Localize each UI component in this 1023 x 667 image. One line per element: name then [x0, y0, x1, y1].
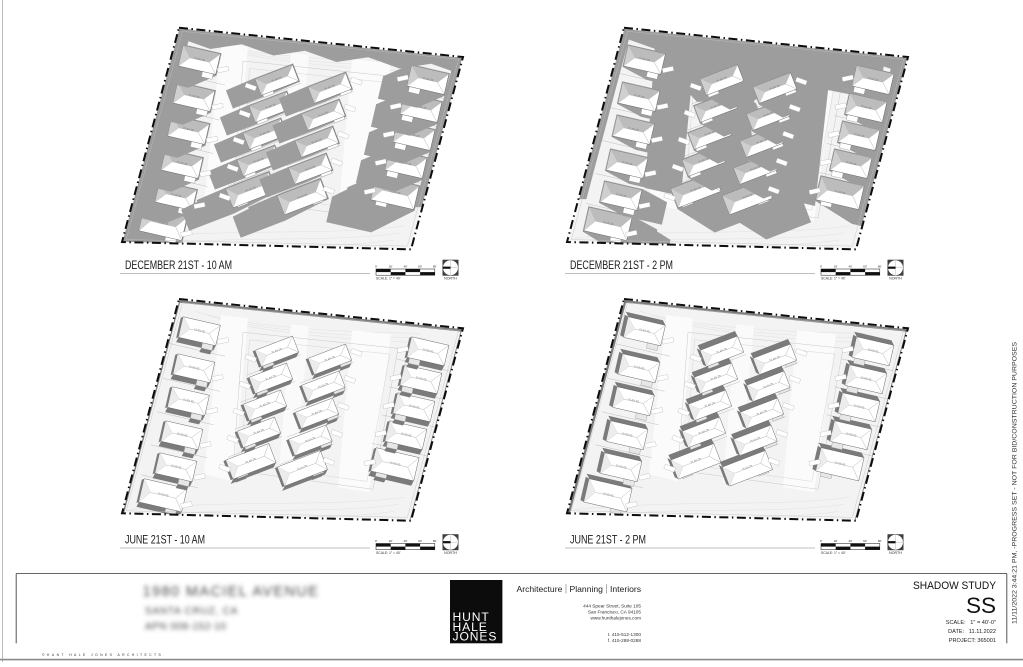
- svg-text:40′: 40′: [848, 265, 852, 269]
- svg-text:f. 415-288-0288: f. 415-288-0288: [608, 638, 641, 643]
- svg-text:40′: 40′: [403, 539, 407, 543]
- svg-text:Planning: Planning: [570, 584, 604, 594]
- svg-text:80′: 80′: [878, 265, 882, 269]
- svg-text:NORTH: NORTH: [889, 551, 902, 555]
- svg-text:SHADOW STUDY: SHADOW STUDY: [913, 580, 996, 592]
- svg-text:Interiors: Interiors: [610, 584, 641, 594]
- svg-text:60′: 60′: [418, 539, 422, 543]
- svg-text:20′: 20′: [389, 539, 393, 543]
- svg-text:DECEMBER 21ST - 10 AM: DECEMBER 21ST - 10 AM: [125, 258, 232, 272]
- svg-text:JUNE 21ST - 10 AM: JUNE 21ST - 10 AM: [125, 533, 205, 547]
- svg-text:SCALE: 1″ = 40′: SCALE: 1″ = 40′: [376, 277, 401, 281]
- svg-text:20′: 20′: [834, 265, 838, 269]
- svg-text:80′: 80′: [878, 539, 882, 543]
- svg-text:PROJECT: 365001: PROJECT: 365001: [949, 638, 996, 644]
- svg-text:JONES: JONES: [453, 630, 498, 644]
- svg-text:NORTH: NORTH: [889, 277, 902, 281]
- svg-text:1980 MACIEL AVENUE: 1980 MACIEL AVENUE: [143, 584, 320, 600]
- svg-text:444 Spear Street, Suite 105: 444 Spear Street, Suite 105: [583, 604, 641, 609]
- svg-text:SANTA CRUZ, CA: SANTA CRUZ, CA: [145, 606, 238, 617]
- svg-text:San Francisco, CA 94105: San Francisco, CA 94105: [588, 610, 642, 615]
- svg-text:SCALE: 1″ = 40′-0″: SCALE: 1″ = 40′-0″: [946, 620, 996, 626]
- svg-text:SCALE: 1″ = 40′: SCALE: 1″ = 40′: [821, 277, 846, 281]
- svg-text:20′: 20′: [389, 265, 393, 269]
- svg-text:DATE: 11.11.2022: DATE: 11.11.2022: [948, 629, 996, 635]
- svg-text:40′: 40′: [403, 265, 407, 269]
- svg-text:80′: 80′: [433, 265, 437, 269]
- svg-text:APN 008-152-10: APN 008-152-10: [145, 622, 227, 633]
- svg-text:DECEMBER 21ST - 2 PM: DECEMBER 21ST - 2 PM: [570, 258, 673, 272]
- svg-text:80′: 80′: [433, 539, 437, 543]
- svg-text:t. 415-512-1300: t. 415-512-1300: [608, 632, 641, 637]
- svg-text:SS: SS: [966, 593, 996, 618]
- svg-text:NORTH: NORTH: [444, 277, 457, 281]
- svg-text:60′: 60′: [863, 265, 867, 269]
- svg-text:NORTH: NORTH: [444, 551, 457, 555]
- svg-text:SCALE: 1″ = 40′: SCALE: 1″ = 40′: [821, 551, 846, 555]
- svg-text:60′: 60′: [418, 265, 422, 269]
- svg-text:11/11/2022 3:44:21 PM, -PROGR: 11/11/2022 3:44:21 PM, -PROGRESS SET - N…: [1012, 342, 1019, 624]
- svg-text:40′: 40′: [848, 539, 852, 543]
- svg-text:JUNE 21ST - 2 PM: JUNE 21ST - 2 PM: [570, 533, 646, 547]
- svg-text:©HUNT HALE JONES ARCHITECTS: ©HUNT HALE JONES ARCHITECTS: [42, 653, 163, 657]
- svg-text:www.hunthalejones.com: www.hunthalejones.com: [590, 616, 641, 621]
- svg-text:20′: 20′: [834, 539, 838, 543]
- svg-text:SCALE: 1″ = 40′: SCALE: 1″ = 40′: [376, 551, 401, 555]
- svg-text:60′: 60′: [863, 539, 867, 543]
- svg-text:Architecture: Architecture: [517, 584, 563, 594]
